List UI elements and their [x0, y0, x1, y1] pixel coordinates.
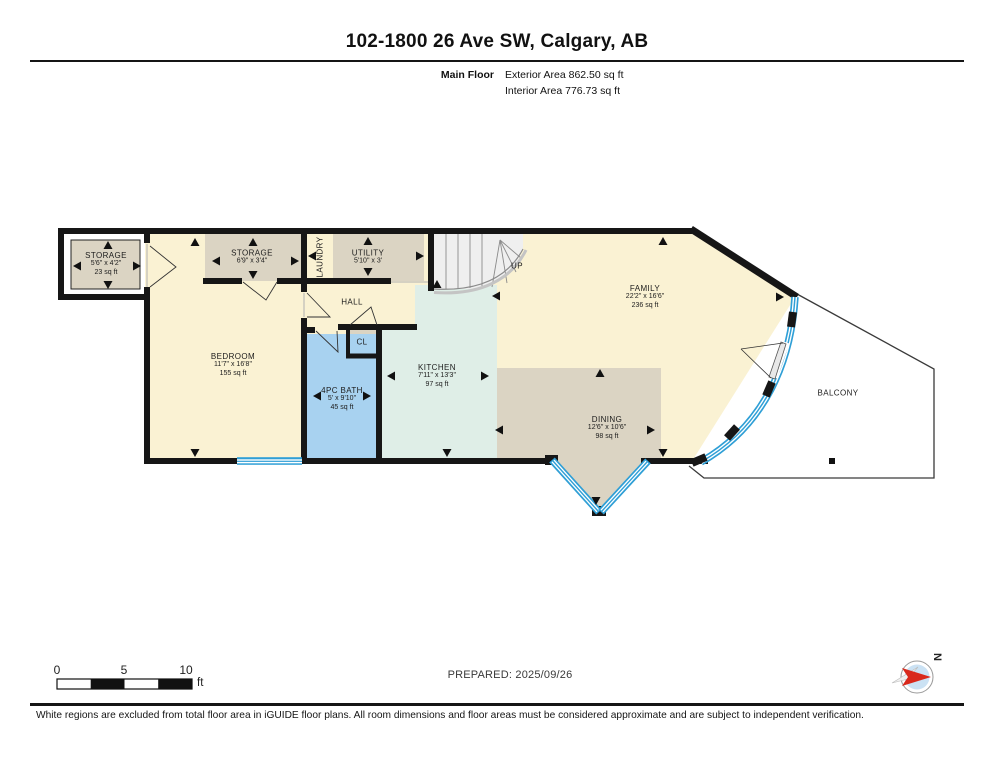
- balcony-post: [829, 458, 835, 464]
- bedroom-window: [237, 457, 302, 465]
- room-label-family: FAMILY 22'2" x 16'6" 236 sq ft: [626, 284, 664, 310]
- room-label-storage-2: STORAGE 6'9" x 3'4": [231, 248, 273, 266]
- floorplan-drawing: [0, 0, 994, 768]
- floorplan-page: 102-1800 26 Ave SW, Calgary, AB Main Flo…: [0, 0, 994, 768]
- room-label-hall: HALL: [341, 298, 363, 307]
- room-label-bath: 4PC BATH 5' x 9'10" 45 sq ft: [321, 386, 363, 412]
- room-label-laundry: LAUNDRY: [316, 237, 325, 278]
- room-label-utility: UTILITY 5'10" x 3': [352, 248, 385, 266]
- room-label-closet: CL: [356, 338, 367, 347]
- stairs-up-label: UP: [511, 262, 523, 271]
- room-label-bedroom: BEDROOM 11'7" x 16'8" 155 sq ft: [211, 352, 255, 378]
- room-label-balcony: BALCONY: [817, 389, 858, 398]
- room-label-storage-left: STORAGE 5'6" x 4'2" 23 sq ft: [85, 251, 127, 277]
- room-label-dining: DINING 12'6" x 10'6" 98 sq ft: [588, 415, 626, 441]
- compass-icon: [892, 661, 933, 693]
- room-label-kitchen: KITCHEN 7'11" x 13'3" 97 sq ft: [418, 363, 456, 389]
- scale-bar: [57, 679, 192, 689]
